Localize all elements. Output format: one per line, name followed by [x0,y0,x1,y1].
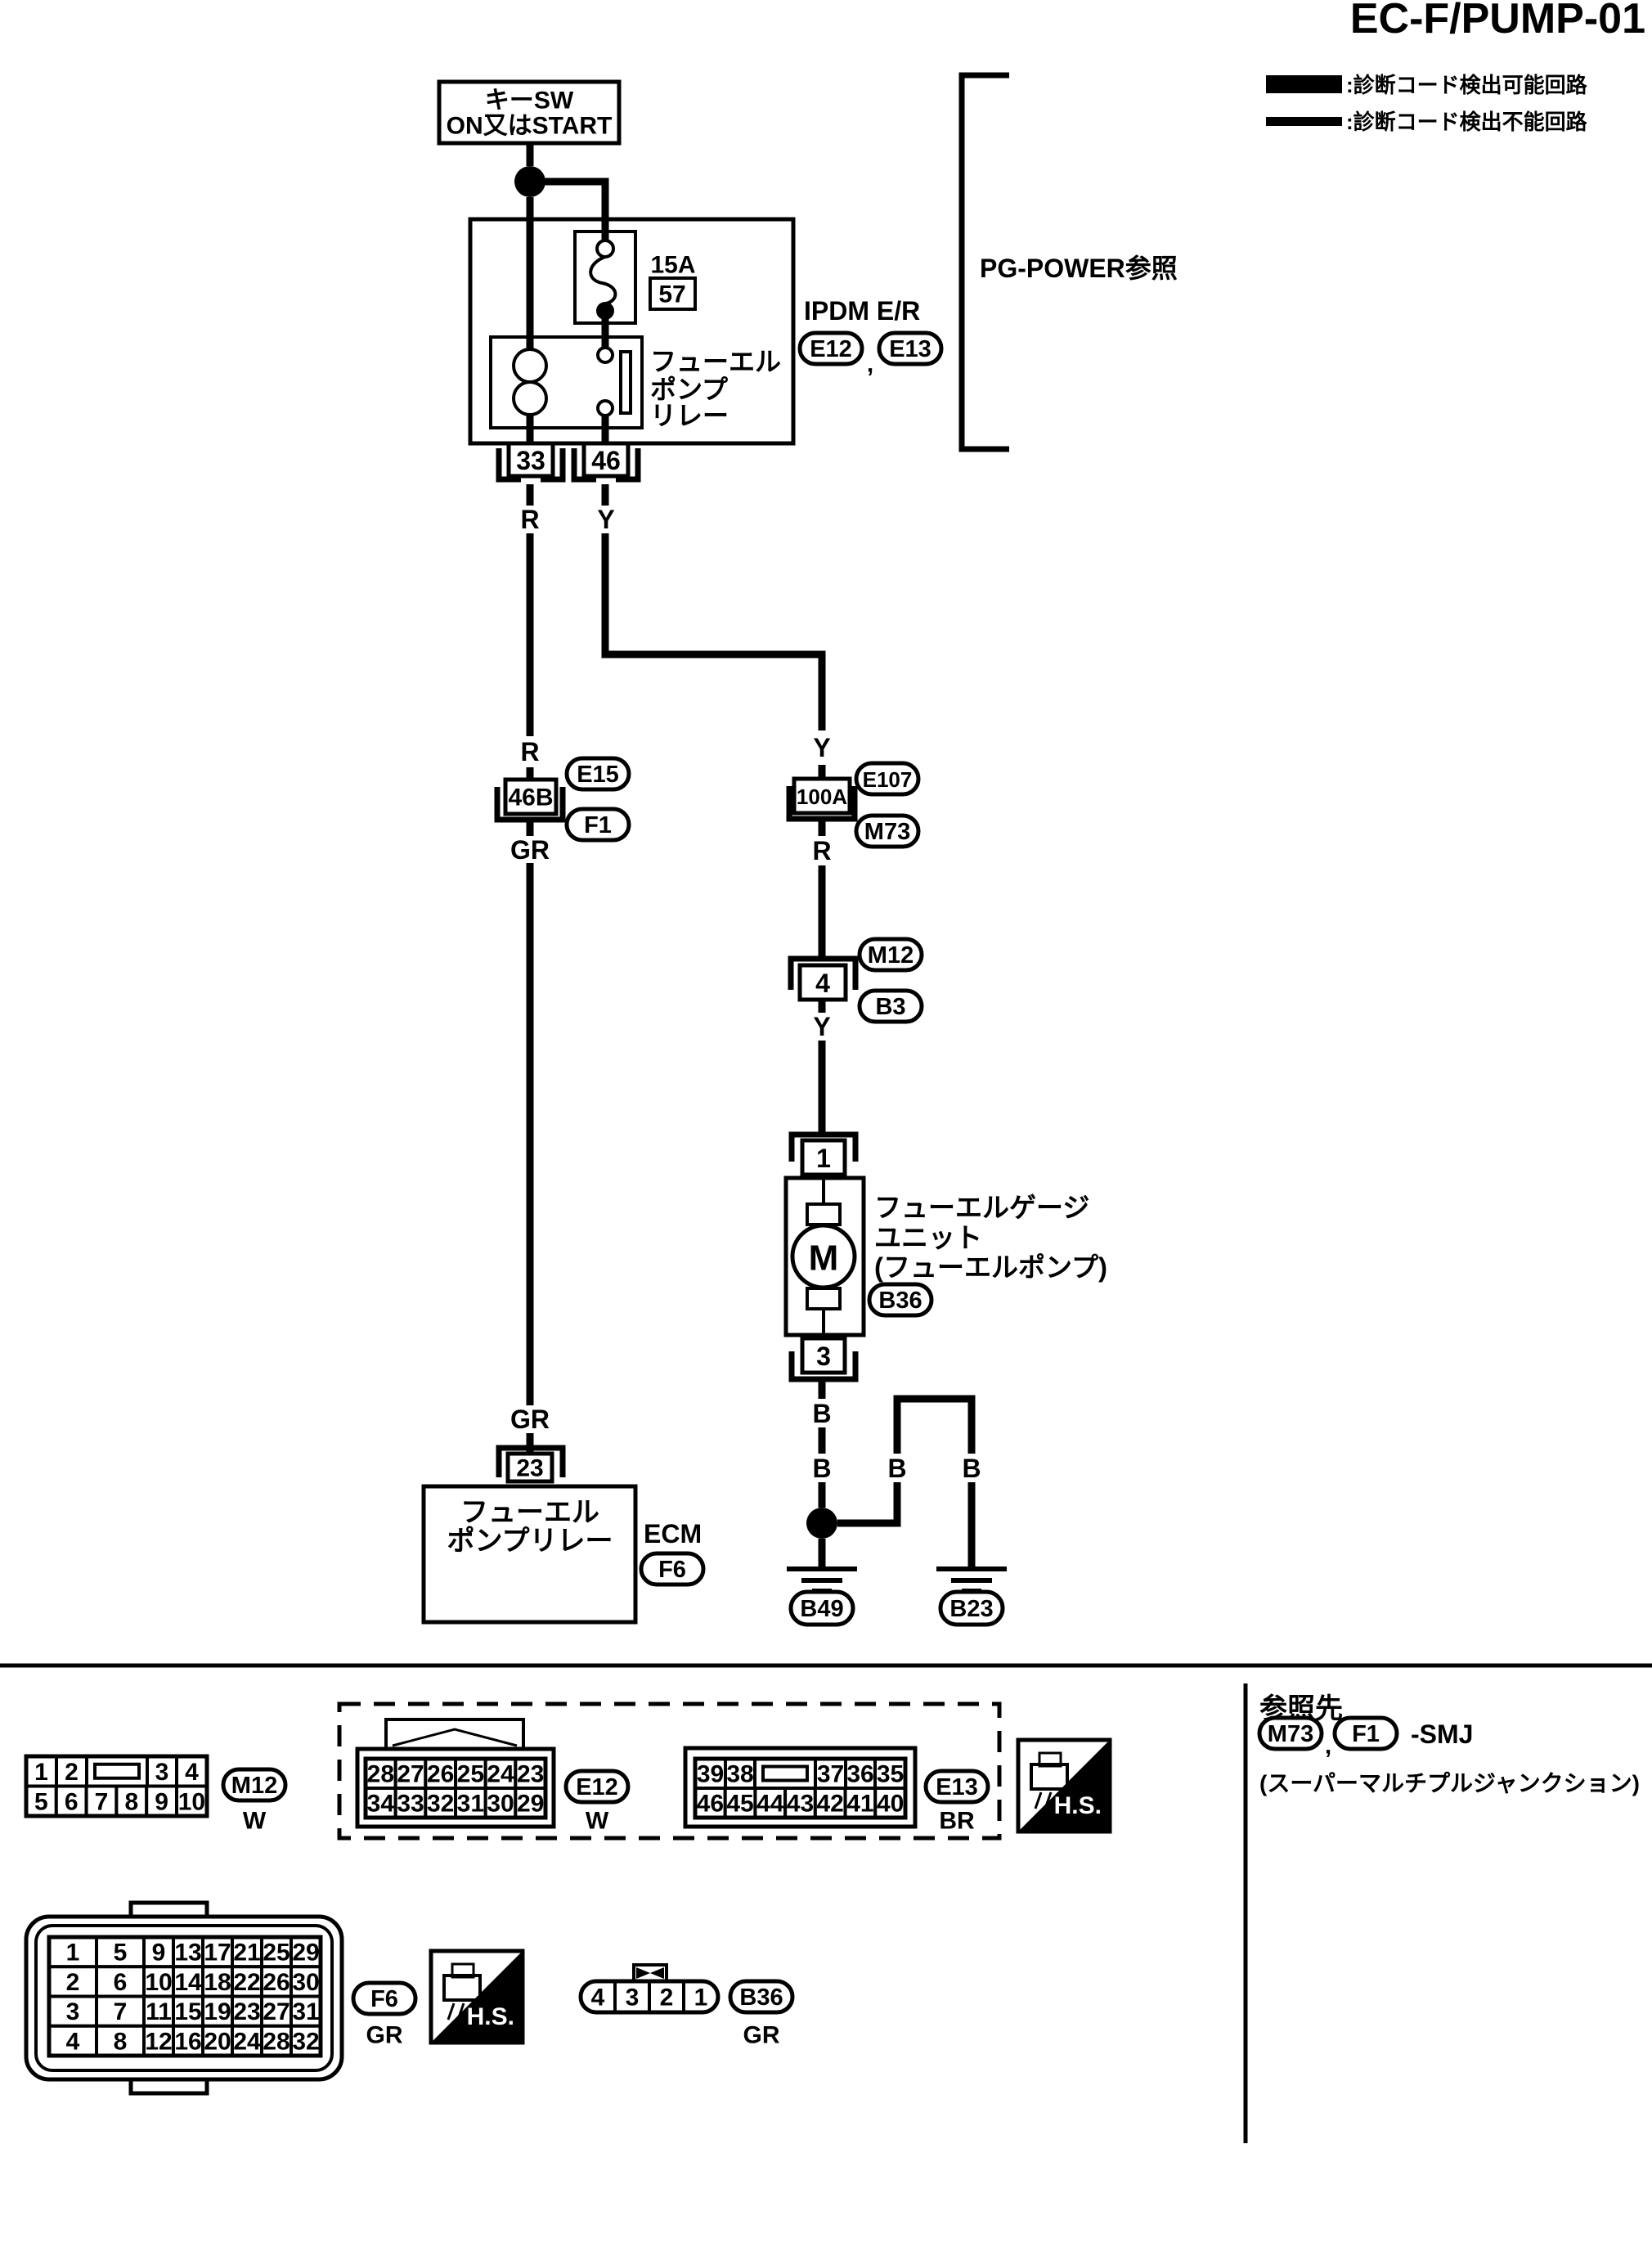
m12-color: W [243,1808,267,1835]
connector-view-m12: 12345678910 [26,1756,207,1816]
hs-label: H.S. [1054,1792,1102,1819]
pin-number: 18 [204,1969,231,1996]
hs-icon-1: H.S. [1018,1740,1110,1832]
connector-badge-b49-label: B49 [800,1596,843,1622]
fg-pin1-number: 1 [816,1144,831,1173]
connector-badge-f1-label: F1 [584,812,612,838]
pin-number: 16 [174,2028,201,2055]
relay-name-2: ポンプ [650,375,729,404]
relay-contact-blade [621,352,631,413]
pin-number: 20 [204,2028,231,2055]
connector-badge-m12-view-label: M12 [231,1773,277,1799]
fg-brush-bottom [807,1288,840,1309]
pin-number: 1 [34,1759,48,1786]
fuel-gauge-unit: 1 M 3 フューエルゲージ ユニット (フューエルポンプ) B36 [792,1135,1107,1379]
pin-number: 10 [178,1788,205,1815]
connector-badge-e107-label: E107 [863,767,913,792]
e12-latch [386,1719,523,1751]
connector-view-e12: 282726252423343332313029 [366,1759,545,1818]
pin-number: 7 [114,1998,128,2025]
connector-badge-f1-ref-label: F1 [1352,1721,1380,1747]
diagram-svg: EC-F/PUMP-01 :診断コード検出可能回路 :診断コード検出不能回路 P… [0,0,1652,2239]
pin-number: 8 [124,1788,138,1815]
pin-number: 38 [726,1761,753,1788]
page-title: EC-F/PUMP-01 [1350,0,1645,43]
ground-symbol [936,1569,1007,1591]
pin-number: 2 [66,1969,80,1996]
ipdm-comma: , [867,351,873,378]
legend-thick-bar [1266,75,1342,93]
hs-icon-2: H.S. [431,1951,523,2043]
pin-number: 31 [292,1998,319,2025]
relay-coil-loop-2 [514,382,546,415]
connector-badge-f6-label: F6 [658,1557,686,1583]
pg-power-bracket: PG-POWER参照 [962,75,1178,449]
relay-contact-top [598,348,613,362]
ecm-label: ECM [644,1519,702,1549]
wire-label-b3: B [887,1454,906,1483]
pin46-number: 46 [591,446,621,475]
ecm-name-2: ポンプリレー [447,1525,613,1557]
wire-label-gr1: GR [510,835,550,865]
b36-pin: 3 [626,1985,640,2012]
pin-number: 7 [95,1788,109,1815]
pin-number: 44 [756,1791,784,1818]
pin-number: 25 [457,1761,484,1788]
pin-number: 46 [697,1791,724,1818]
e12-color: W [586,1808,609,1835]
reference-note: (スーパーマルチプルジャンクション) [1259,1771,1640,1796]
header: EC-F/PUMP-01 :診断コード検出可能回路 :診断コード検出不能回路 [1266,0,1645,134]
b36-color: GR [743,2022,780,2049]
pin-number: 30 [487,1791,514,1818]
pin-number: 41 [846,1791,873,1818]
pin-number: 11 [146,1998,172,2025]
pin-number: 3 [155,1759,169,1786]
pin-number: 15 [174,1998,201,2025]
pin-number: 13 [174,1940,201,1967]
pg-power-note: PG-POWER参照 [980,254,1178,283]
pin-number: 23 [233,1998,260,2025]
connector-badge-e13-view-label: E13 [936,1774,978,1800]
motor-letter: M [809,1238,839,1279]
pin-number: 14 [174,1969,202,1996]
key-switch-line1: キーSW [485,88,574,115]
pin-number: 6 [65,1788,79,1815]
wire-label-b1: B [812,1399,831,1428]
wire-label-gr2: GR [510,1405,550,1434]
relay-contact-bottom [598,401,613,416]
pin4-number: 4 [815,969,830,998]
pin-number: 28 [263,2028,290,2055]
pin-number: 3 [66,1998,80,2025]
pin-number: 25 [263,1940,290,1967]
fuse-number: 57 [658,281,685,308]
pin-number: 9 [152,1940,166,1967]
pin-number: 4 [66,2028,80,2055]
ground-b23: B23 [936,1569,1007,1625]
wire-label-r2: R [520,737,539,766]
pin-number: 34 [367,1791,395,1818]
pin-number: 4 [185,1759,199,1786]
fg-pin3-number: 3 [816,1342,831,1371]
legend-undetectable-label: :診断コード検出不能回路 [1346,110,1588,134]
wire-label-r1: R [520,505,539,534]
pin-number: 5 [114,1940,128,1967]
connector-badge-e12-view-label: E12 [576,1774,618,1800]
ground-b49: B49 [787,1569,857,1625]
connector-badge-e12-label: E12 [810,336,852,362]
pin-number: 35 [877,1761,904,1788]
b36-pin: 2 [660,1985,674,2012]
wire-ground-loop [837,1399,972,1568]
pin-number: 9 [155,1788,168,1815]
key-switch-line2: ON又はSTART [447,113,613,140]
connector-view-e13: 393837363546454443424140 [695,1759,905,1818]
pin-number: 6 [114,1969,128,1996]
pin-number: 37 [817,1761,844,1788]
pin-number: 42 [817,1791,844,1818]
ground-symbol [787,1569,857,1591]
reference-section: 参照先 M73 , F1 -SMJ (スーパーマルチプルジャンクション) [1259,1693,1640,1796]
fuse-rating: 15A [650,252,695,279]
pin-number: 29 [292,1940,319,1967]
pin-number: 32 [427,1791,454,1818]
wire-label-y2: Y [813,733,830,762]
pin-number: 40 [877,1791,904,1818]
connector-badge-e13-label: E13 [889,336,931,362]
wire-label-b2: B [812,1454,831,1483]
pin-number: 32 [292,2028,319,2055]
pin-number: 29 [517,1791,544,1818]
smj-46b-number: 46B [508,784,553,811]
connector-badge-b36-view-label: B36 [739,1985,783,2011]
pin-number: 28 [367,1761,394,1788]
connector-badge-f6-view-label: F6 [370,1986,398,2012]
pin-number: 30 [292,1969,319,1996]
legend-detectable-label: :診断コード検出可能回路 [1346,73,1588,97]
pin33-number: 33 [516,446,545,475]
b36-pin: 4 [591,1985,605,2012]
pin-number: 22 [233,1969,260,1996]
fg-name-1: フューエルゲージ [874,1193,1089,1223]
relay-name-3: リレー [650,401,729,430]
pin-number: 19 [204,1998,231,2025]
pin-number: 2 [65,1759,79,1786]
connector-badge-b36-label: B36 [878,1288,922,1314]
pin-number: 26 [427,1761,454,1788]
pin-number: 45 [726,1791,753,1818]
ipdm-label: IPDM E/R [804,296,920,326]
relay-coil-loop-1 [514,349,546,382]
connector-badge-b3-label: B3 [875,994,905,1020]
fuse-terminal-bottom [596,302,614,320]
connector-badge-m73-ref-label: M73 [1268,1721,1313,1747]
relay-name-1: フューエル [650,347,781,376]
wire-label-y1: Y [597,505,614,534]
connector-badge-e15-label: E15 [577,762,619,788]
reference-suffix: -SMJ [1411,1719,1473,1749]
pin-number: 8 [114,2028,128,2055]
pin-number: 27 [397,1761,424,1788]
f6-color: GR [366,2022,403,2049]
wire-label-b4: B [962,1454,981,1483]
blank-slot [763,1767,807,1781]
b36-pin: 1 [694,1985,708,2012]
fg-name-2: ユニット [874,1223,982,1253]
pin-number: 24 [233,2028,261,2055]
wire-label-y3: Y [813,1012,830,1041]
smj-100a-number: 100A [797,784,847,809]
junction-dot-ground [806,1508,837,1539]
connector-badge-m12-mid-label: M12 [868,942,914,969]
pin-number: 5 [34,1788,48,1815]
pin-number: 36 [846,1761,873,1788]
pin-number: 27 [263,1998,290,2025]
fg-brush-top [807,1204,840,1225]
legend-thin-bar [1266,117,1342,126]
wire-label-r3: R [812,836,831,865]
hs-label: H.S. [467,2003,514,2030]
connector-badge-b23-label: B23 [949,1596,993,1622]
pin-number: 12 [145,2028,172,2055]
pin-number: 26 [263,1969,290,1996]
e13-color: BR [939,1808,975,1835]
pin-number: 33 [397,1791,424,1818]
pin-number: 1 [66,1940,80,1967]
reference-comma: , [1325,1733,1331,1760]
fuse-terminal-top [597,240,613,257]
connector-view-f6: 1591317212529261014182226303711151923273… [49,1937,321,2056]
pin-number: 43 [787,1791,814,1818]
junction-dot-top [514,166,545,197]
connector-view-b36: 4 3 2 1 B36 GR [581,1965,792,2049]
blank-slot [95,1764,139,1778]
ecm-name-1: フューエル [460,1497,599,1528]
fg-name-3: (フューエルポンプ) [874,1252,1107,1283]
pin-number: 10 [145,1969,172,1996]
pin-number: 24 [487,1761,514,1788]
pin-number: 17 [204,1940,231,1967]
pin-number: 23 [517,1761,544,1788]
pin-number: 31 [457,1791,484,1818]
connector-badge-m73-label: M73 [864,819,910,845]
wiring-diagram-page: EC-F/PUMP-01 :診断コード検出可能回路 :診断コード検出不能回路 P… [0,0,1652,2239]
pin-number: 39 [697,1761,724,1788]
ecm-pin23-number: 23 [516,1455,543,1482]
pin-number: 21 [233,1940,260,1967]
